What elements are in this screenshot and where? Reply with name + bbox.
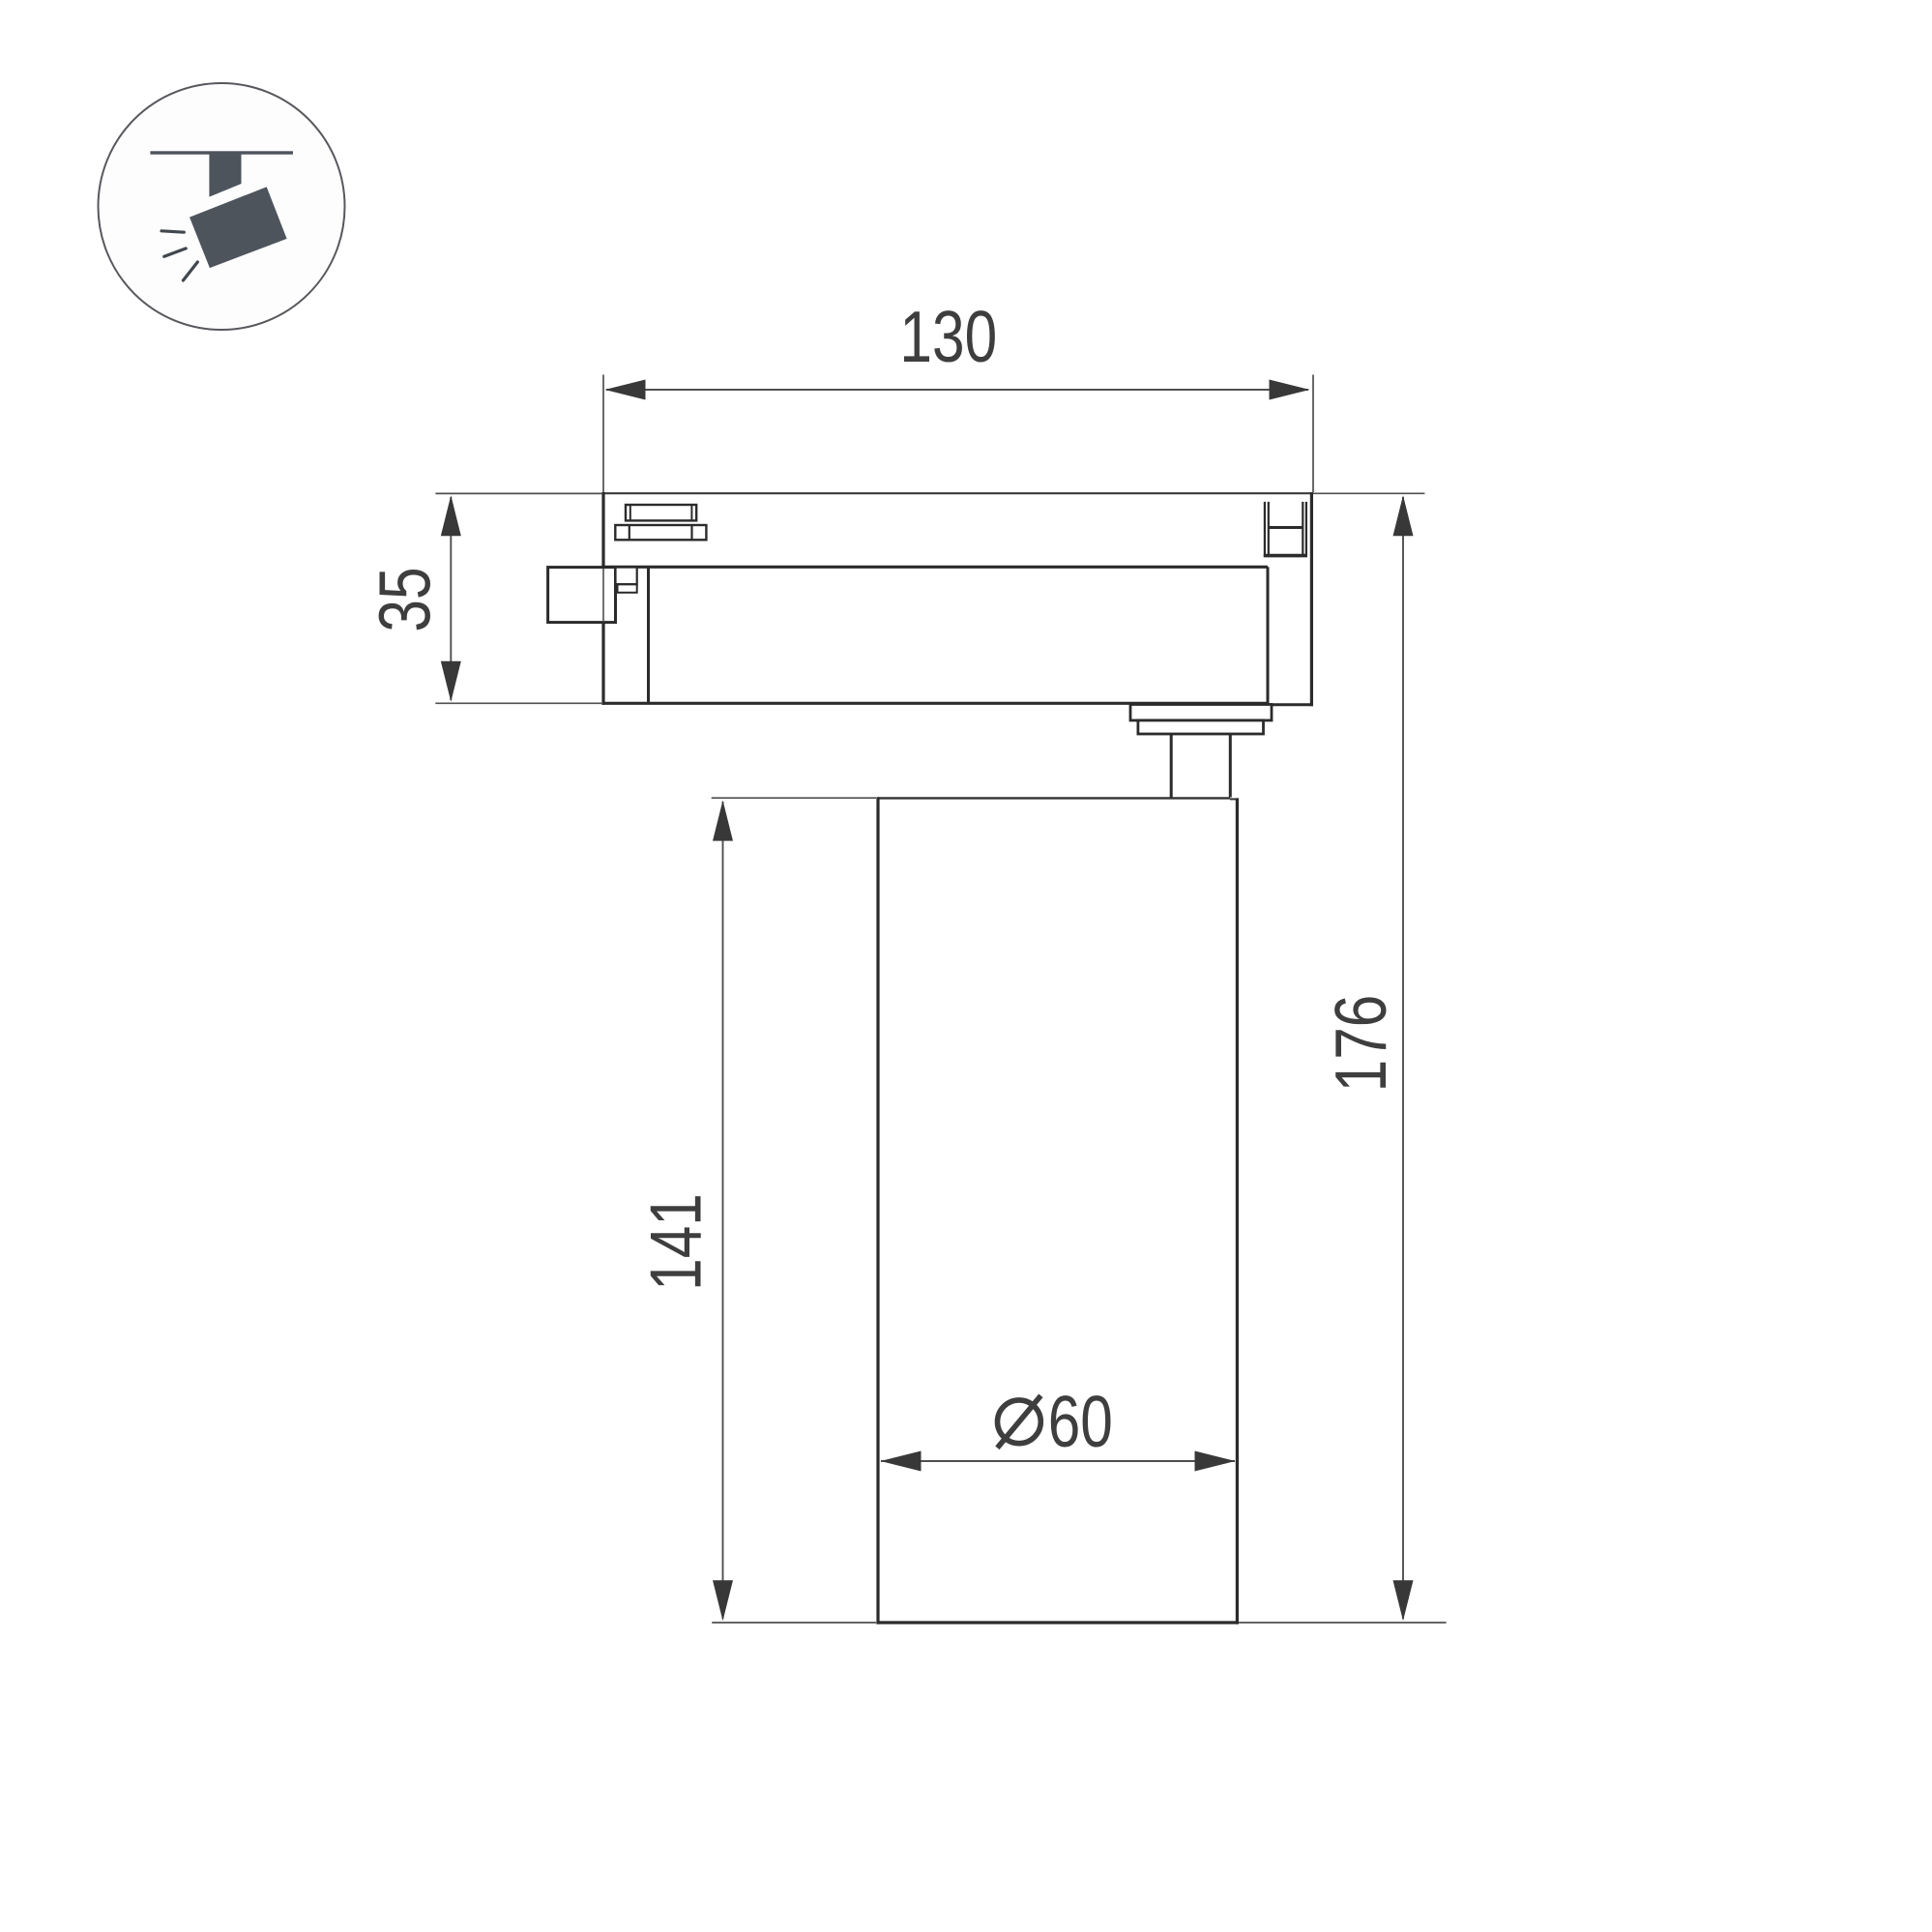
svg-text:60: 60 xyxy=(1048,1382,1113,1463)
svg-text:176: 176 xyxy=(1320,995,1401,1093)
svg-text:35: 35 xyxy=(365,567,446,631)
svg-text:141: 141 xyxy=(635,1193,717,1291)
svg-text:130: 130 xyxy=(899,296,997,377)
